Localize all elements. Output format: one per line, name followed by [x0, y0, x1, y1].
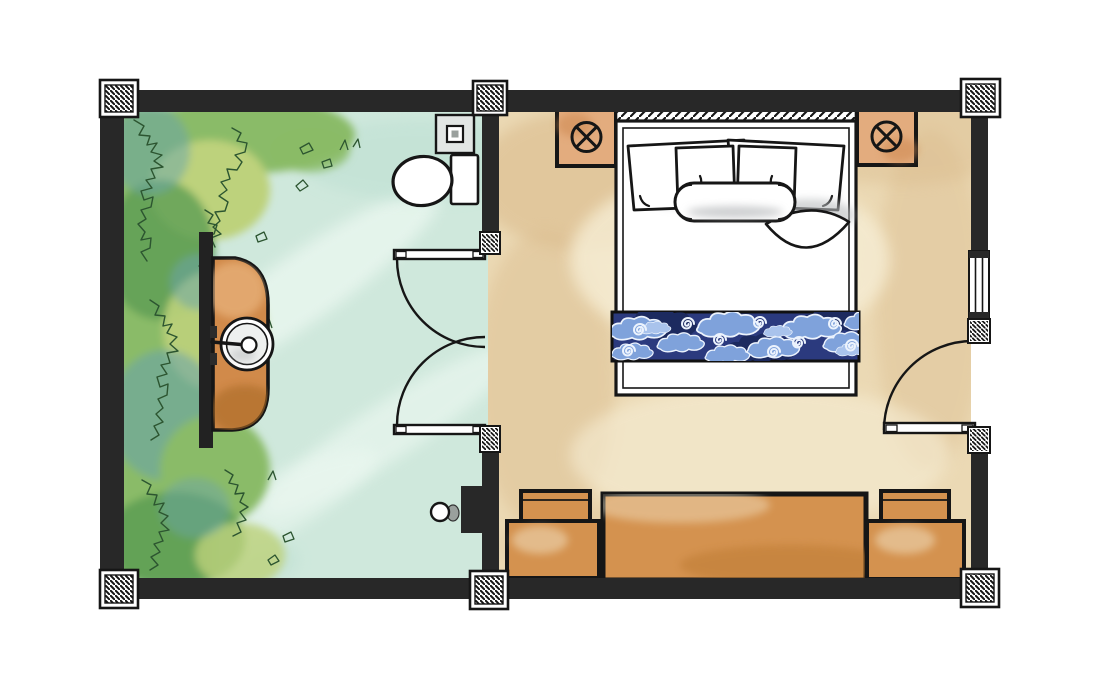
foliage-blob	[270, 128, 350, 172]
floor-plan-page	[0, 0, 1100, 688]
door-jamb-hatched	[480, 232, 500, 254]
toilet-tank	[451, 155, 478, 204]
window-frame	[969, 251, 989, 319]
double-bed	[609, 104, 891, 395]
partition-wall-lower	[482, 452, 499, 579]
column-hatched	[961, 569, 999, 607]
wall-bottom	[100, 578, 988, 599]
floor-plan-canvas	[0, 0, 1100, 688]
wall-right-upper	[971, 110, 988, 253]
side-table-back	[521, 491, 590, 521]
window	[969, 251, 989, 319]
bolster-shade	[687, 206, 783, 218]
door-hinge-cap	[396, 252, 406, 258]
bedside-table-left	[557, 108, 616, 166]
door-leaf	[394, 425, 485, 434]
column-hatched	[100, 570, 138, 608]
wall-right-lower	[971, 453, 988, 579]
flush-button-inner	[452, 131, 459, 138]
bench-set	[507, 487, 964, 585]
door-jamb-hatched	[968, 427, 990, 453]
column-hatched	[470, 571, 508, 609]
wall-top	[100, 90, 988, 112]
tap-handle	[210, 326, 217, 338]
column-hatched	[473, 81, 507, 115]
bolster-pillow	[675, 183, 795, 221]
drain-knob	[242, 338, 257, 353]
fixture-handle	[431, 503, 449, 521]
door-jamb-hatched	[968, 319, 990, 343]
window-cap	[969, 312, 989, 319]
column-hatched	[100, 80, 138, 117]
window-cap	[969, 251, 989, 258]
wood-wash	[512, 526, 568, 554]
wood-wash	[875, 526, 935, 554]
partition-wall-upper	[482, 110, 499, 234]
side-table-left	[507, 491, 599, 578]
vanity-counter-back	[199, 232, 213, 448]
column-hatched	[961, 79, 1000, 117]
batik-bed-runner	[609, 306, 891, 362]
fixture-box	[461, 486, 483, 533]
door-leaf	[394, 250, 485, 259]
side-table-right	[867, 491, 964, 579]
bedside-table-right	[857, 108, 918, 165]
tap-handle	[210, 353, 217, 365]
wall-left	[100, 90, 124, 599]
bench	[590, 487, 900, 585]
side-table-back	[881, 491, 949, 521]
door-hinge-cap	[886, 425, 897, 432]
wood-wash	[205, 262, 265, 318]
batik-pattern	[609, 306, 891, 362]
door-leaf	[884, 423, 975, 433]
door-hinge-cap	[396, 427, 406, 433]
foliage-blob	[160, 478, 230, 538]
wood-wash	[557, 113, 593, 137]
door-jamb-hatched	[480, 426, 500, 452]
